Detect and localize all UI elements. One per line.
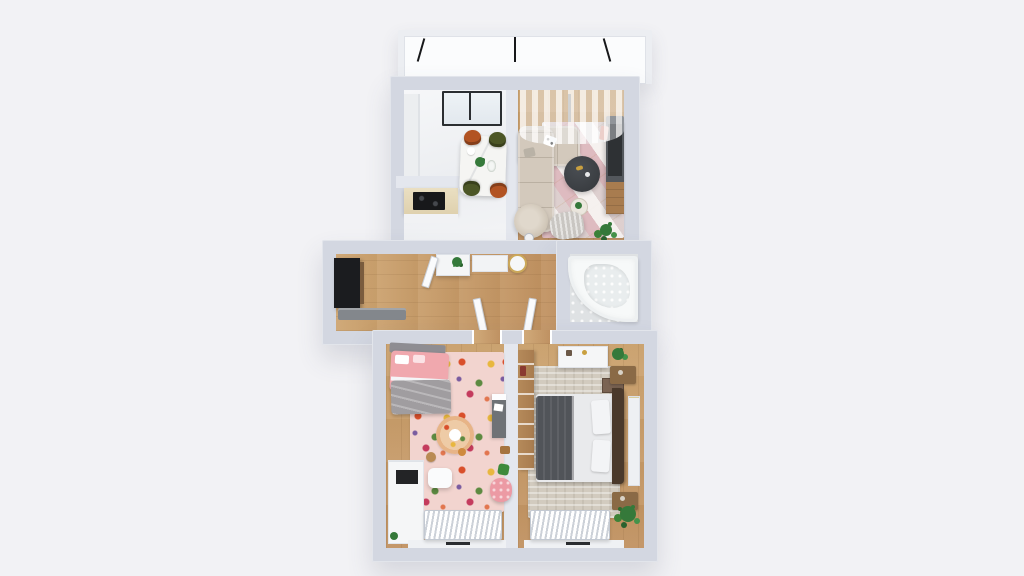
hall-wardrobe <box>334 258 360 308</box>
kitchen-counter-front <box>404 214 458 223</box>
kids-desk <box>492 394 506 438</box>
console-wood-box <box>606 182 624 214</box>
master-room-door-opening <box>522 330 552 344</box>
cooktop <box>413 192 445 210</box>
nightstand-decor <box>620 496 625 501</box>
master-floor-plant <box>620 506 636 522</box>
railing-post <box>514 37 516 62</box>
kids-tv <box>396 470 418 484</box>
kids-desk-papers <box>494 403 504 411</box>
kids-room-door-opening <box>472 330 502 344</box>
master-wall-decor-red <box>520 366 526 376</box>
kids-radiator <box>424 510 502 540</box>
master-dresser-decor-gold <box>582 350 587 355</box>
nightstand-decor <box>618 370 623 375</box>
master-dresser-plant <box>612 348 624 360</box>
kids-pouf-pink <box>490 478 512 502</box>
master-bed-pillow <box>591 439 611 472</box>
kids-wood-chair <box>500 446 510 454</box>
table-plant <box>475 157 485 167</box>
railing-post <box>417 38 426 62</box>
kids-bed <box>386 340 454 415</box>
balcony-door-glass <box>442 91 502 126</box>
kids-desk-top <box>492 394 506 400</box>
living-plant <box>600 224 612 236</box>
hall-round-stand <box>508 254 527 273</box>
kids-small-plant <box>390 532 398 540</box>
master-bed <box>534 388 626 488</box>
balcony-door-mullion <box>469 93 471 120</box>
coffee-table-decor-white <box>585 172 590 177</box>
hall-bench <box>338 308 406 320</box>
kids-white-table <box>428 468 452 488</box>
dining-chair-olive-1 <box>488 131 506 147</box>
hall-shoe-cabinet <box>472 255 508 272</box>
railing-post <box>603 38 612 62</box>
floor-plan-render <box>0 0 1024 576</box>
master-dresser-decor <box>566 350 572 356</box>
kids-window-frame <box>446 542 470 545</box>
kids-bed-blanket <box>391 380 452 415</box>
kitchen-nook-wall <box>396 176 462 188</box>
master-radiator <box>530 510 610 540</box>
master-bed-fold <box>572 396 574 480</box>
master-window-frame <box>566 542 590 545</box>
master-nightstand-top <box>610 366 636 384</box>
master-bed-dark-blanket <box>536 396 572 480</box>
side-table-plant <box>575 202 582 209</box>
hall-wardrobe-wood-edge <box>360 262 364 304</box>
master-wall-shelf <box>628 396 640 486</box>
play-stool <box>458 448 466 456</box>
master-headboard <box>612 388 624 484</box>
table-plate <box>467 147 475 155</box>
living-curtains <box>520 90 624 144</box>
play-stool <box>426 452 436 462</box>
table-vase <box>487 160 496 172</box>
kids-bed-pillow <box>395 355 409 365</box>
kitchen-tall-cabinet <box>404 94 420 178</box>
hall-plant <box>452 257 462 267</box>
kids-toy-green <box>497 463 510 476</box>
play-mat <box>436 416 474 454</box>
coffee-table <box>564 156 600 192</box>
master-bed-pillow <box>591 399 611 434</box>
kids-bed-pillow <box>413 355 425 364</box>
